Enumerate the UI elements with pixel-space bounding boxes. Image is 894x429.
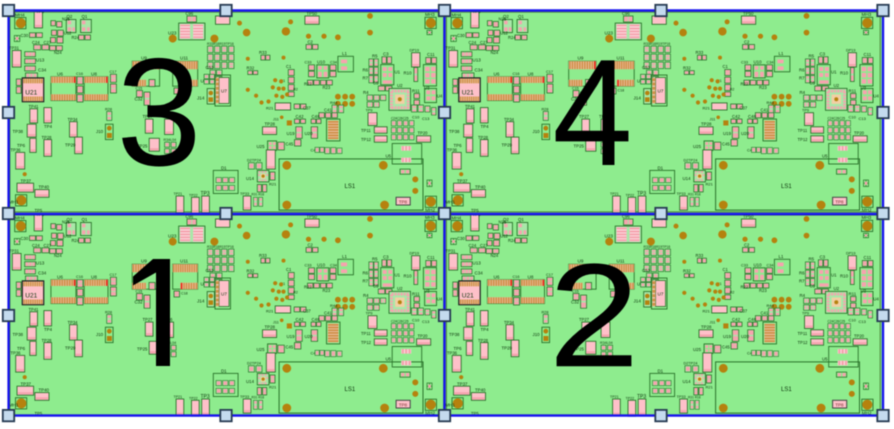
svg-text:4: 4 xyxy=(552,29,632,198)
svg-text:3: 3 xyxy=(116,26,201,198)
svg-text:2: 2 xyxy=(548,234,639,398)
